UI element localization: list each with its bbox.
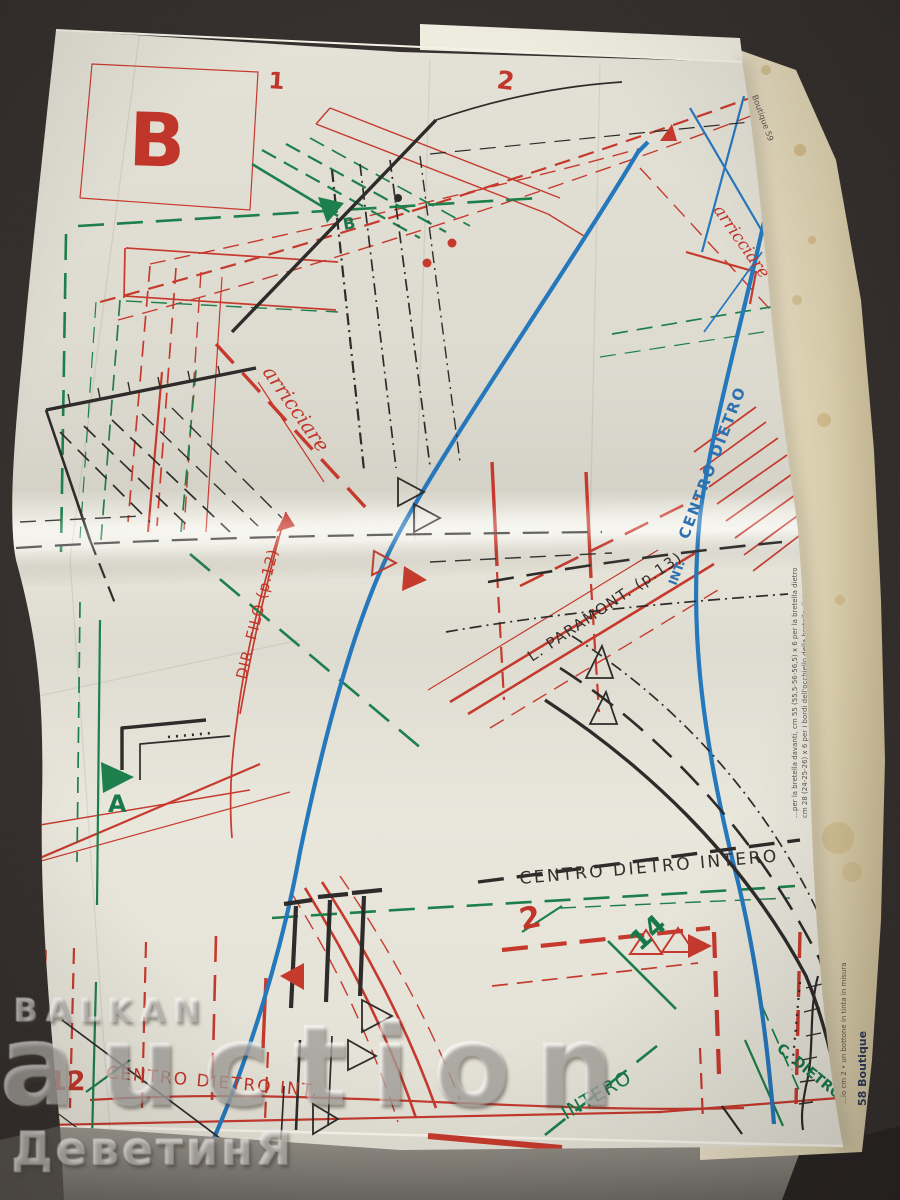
margin-note-1: …per la bretella davanti, cm 55 (55,5-56…	[791, 567, 799, 818]
view-letter: B	[127, 97, 186, 185]
button-mark-icon	[423, 259, 432, 268]
piece-number-1: 1	[268, 68, 286, 95]
button-mark-icon	[394, 194, 402, 202]
button-mark-icon	[448, 239, 457, 248]
page-number-bottom: 58 Boutique	[856, 1031, 869, 1106]
photo-of-pattern-sheet: B 1 2 3 12 2 14 A B arricciare arricciar…	[0, 0, 900, 1200]
size-marker-a: A	[108, 790, 127, 818]
pattern-sheet-drawing: B 1 2 3 12 2 14 A B arricciare arricciar…	[0, 0, 900, 1200]
piece-number-2: 2	[495, 65, 516, 96]
main-sheet	[12, 30, 843, 1150]
margin-note-3: …io cm 2 • un bottone in tinta in misura	[840, 962, 848, 1104]
